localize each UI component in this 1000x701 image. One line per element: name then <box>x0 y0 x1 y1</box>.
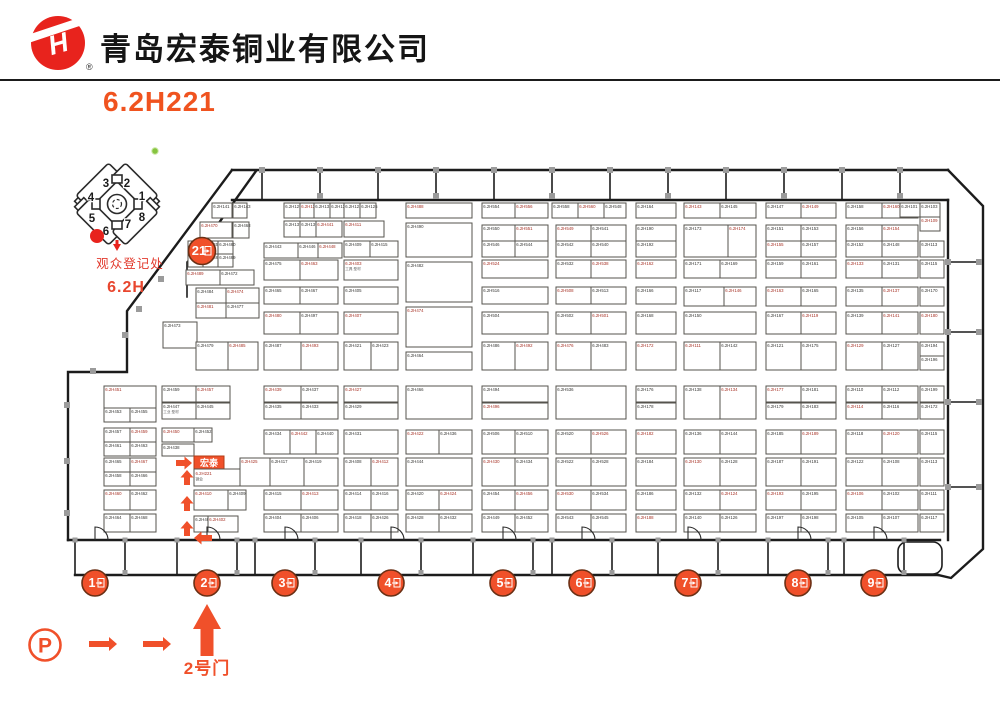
svg-text:工业 型材: 工业 型材 <box>163 409 179 414</box>
svg-text:6.2H143: 6.2H143 <box>234 204 251 209</box>
svg-text:6.2H556: 6.2H556 <box>516 204 533 209</box>
booth: 6.2H143 <box>684 203 720 218</box>
svg-text:6.2H541: 6.2H541 <box>592 226 609 231</box>
svg-text:6.2H438: 6.2H438 <box>163 445 180 450</box>
booth: 6.2H190 <box>636 225 676 241</box>
svg-text:1: 1 <box>89 576 96 590</box>
svg-text:6.2H176: 6.2H176 <box>637 387 654 392</box>
svg-text:6.2H462: 6.2H462 <box>131 491 148 496</box>
svg-text:6.2H465: 6.2H465 <box>105 459 122 464</box>
svg-text:6.2H172: 6.2H172 <box>637 343 654 348</box>
svg-text:6.2H436: 6.2H436 <box>440 431 457 436</box>
booth: 6.2H149 <box>801 203 836 218</box>
booth: 6.2H181 <box>801 386 836 402</box>
booth: 6.2H428 <box>406 514 439 532</box>
booth: 6.2H419 <box>304 458 338 486</box>
booth: 6.2H192 <box>636 241 676 257</box>
booth: 6.2H483 <box>591 342 626 370</box>
svg-text:6.2H516: 6.2H516 <box>483 288 500 293</box>
booth: 6.2H157 <box>801 241 836 257</box>
booth: 6.2H418 <box>344 514 371 532</box>
svg-text:铜业: 铜业 <box>196 477 204 482</box>
svg-text:6.2H418: 6.2H418 <box>345 515 362 520</box>
svg-text:6.2H185: 6.2H185 <box>767 431 784 436</box>
gate-4: 4 <box>378 570 404 596</box>
svg-text:6.2H467: 6.2H467 <box>131 459 148 464</box>
booth: 6.2H167 <box>766 312 801 334</box>
svg-text:6.2H187: 6.2H187 <box>767 459 784 464</box>
svg-text:6.2H191: 6.2H191 <box>802 459 819 464</box>
booth: 6.2H452 <box>515 514 548 532</box>
svg-text:6.2H485: 6.2H485 <box>229 343 246 348</box>
svg-text:6.2H407: 6.2H407 <box>345 313 362 318</box>
svg-text:6.2H482: 6.2H482 <box>407 263 424 268</box>
booth: 6.2H126 <box>720 514 756 532</box>
svg-text:6.2H472: 6.2H472 <box>221 271 238 276</box>
booth: 6.2H420 <box>406 490 439 510</box>
svg-text:6.2H151: 6.2H151 <box>767 226 784 231</box>
overview-hall-5: 5 <box>89 213 96 225</box>
svg-text:6.2H550: 6.2H550 <box>483 226 500 231</box>
booth: 6.2H426 <box>371 514 398 532</box>
booth: 6.2H412 <box>371 458 398 486</box>
booth: 6.2H468 <box>233 222 251 238</box>
svg-text:6.2H109: 6.2H109 <box>921 218 938 223</box>
svg-text:6.2H452: 6.2H452 <box>195 429 212 434</box>
svg-text:6.2H406: 6.2H406 <box>302 515 319 520</box>
svg-text:6.2H480: 6.2H480 <box>265 313 282 318</box>
booth: 6.2H186 <box>636 490 676 510</box>
svg-text:6.2H179: 6.2H179 <box>767 404 784 409</box>
booth: 6.2H416 <box>371 490 398 510</box>
booth: 6.2H134 <box>720 386 756 419</box>
svg-text:6.2H103: 6.2H103 <box>921 204 938 209</box>
booth: 6.2H453 <box>104 408 130 422</box>
booth: 6.2H172 <box>920 403 944 419</box>
svg-text:6.2H143: 6.2H143 <box>685 204 702 209</box>
booth: 6.2H117 <box>920 514 944 532</box>
svg-text:6.2H443: 6.2H443 <box>265 244 282 249</box>
booth: 6.2H178 <box>636 403 676 419</box>
svg-text:6.2H474: 6.2H474 <box>227 289 244 294</box>
hall-overview-compass: 12345678 <box>72 148 161 251</box>
svg-text:6.2H457: 6.2H457 <box>105 429 122 434</box>
booth: 6.2H548 <box>604 203 626 218</box>
gate-2-label: 2号门 <box>184 658 230 678</box>
booth: 6.2H150 <box>684 312 756 334</box>
svg-text:6.2H414: 6.2H414 <box>345 491 362 496</box>
svg-text:6.2H513: 6.2H513 <box>592 288 609 293</box>
svg-text:6.2H548: 6.2H548 <box>605 204 622 209</box>
svg-text:6.2H180: 6.2H180 <box>921 313 938 318</box>
booth: 6.2H101 <box>900 203 920 217</box>
svg-text:6.2H456: 6.2H456 <box>516 491 533 496</box>
svg-text:6.2H466: 6.2H466 <box>131 473 148 478</box>
booth: 6.2H128 <box>720 458 756 486</box>
booth: 6.2H476 <box>556 342 591 370</box>
svg-text:6.2H464: 6.2H464 <box>407 353 424 358</box>
booth: 6.2H474 <box>226 288 259 303</box>
svg-text:6.2H167: 6.2H167 <box>767 313 784 318</box>
svg-text:6.2H448: 6.2H448 <box>319 244 336 249</box>
svg-text:6.2H430: 6.2H430 <box>483 459 500 464</box>
highlight-booth-number: 6.2H221 <box>196 471 213 476</box>
svg-text:6.2H487: 6.2H487 <box>265 343 282 348</box>
svg-text:6.2H416: 6.2H416 <box>372 491 389 496</box>
svg-text:6.2H463: 6.2H463 <box>301 261 318 266</box>
booth: 6.2H463 <box>300 260 338 280</box>
svg-text:6.2H450: 6.2H450 <box>163 429 180 434</box>
booth: 6.2H438 <box>162 444 194 456</box>
booth: 6.2H103 <box>920 203 940 217</box>
booth: 6.2H159 <box>766 260 801 278</box>
booth: 6.2H115 <box>920 430 944 454</box>
svg-text:6.2H102: 6.2H102 <box>883 491 900 496</box>
svg-text:6.2H136: 6.2H136 <box>685 431 702 436</box>
svg-text:6.2H192: 6.2H192 <box>637 242 654 247</box>
svg-text:6.2H501: 6.2H501 <box>592 313 609 318</box>
overview-hall-3: 3 <box>103 178 109 190</box>
booth: 6.2H137 <box>882 287 918 306</box>
svg-text:6.2H110: 6.2H110 <box>847 387 864 392</box>
booth: 6.2H130 <box>684 458 720 486</box>
booth: 6.2H409 <box>228 490 246 510</box>
booth: 6.2H520 <box>556 430 591 454</box>
booth: 6.2H546 <box>482 241 515 257</box>
svg-text:6.2H134: 6.2H134 <box>721 387 738 392</box>
booth: 6.2H422 <box>406 430 439 454</box>
svg-text:6.2H119: 6.2H119 <box>802 313 819 318</box>
booth: 6.2H119 <box>801 312 836 334</box>
booth: 6.2H191 <box>801 458 836 486</box>
booth: 6.2H111 <box>684 342 720 370</box>
booth: 6.2H536 <box>556 386 626 419</box>
svg-text:6.2H474: 6.2H474 <box>407 308 424 313</box>
svg-text:6.2H536: 6.2H536 <box>557 387 574 392</box>
booth: 6.2H467 <box>130 458 156 472</box>
svg-text:6.2H432: 6.2H432 <box>440 515 457 520</box>
booth: 6.2H163 <box>766 287 801 306</box>
booth: 6.2H451 <box>104 386 156 408</box>
booth: 6.2H180 <box>920 312 944 334</box>
overview-hall-4: 4 <box>88 192 95 204</box>
svg-text:6.2H446: 6.2H446 <box>299 244 316 249</box>
svg-text:6.2H522: 6.2H522 <box>557 459 574 464</box>
booth: 6.2H183 <box>801 403 836 419</box>
booth: 6.2H154 <box>882 225 918 241</box>
company-logo-icon: H <box>26 10 92 78</box>
booth: 6.2H415 <box>370 241 398 257</box>
svg-text:6.2H441: 6.2H441 <box>317 222 334 227</box>
svg-text:6.2H452: 6.2H452 <box>516 515 533 520</box>
booth: 6.2H182 <box>636 430 676 454</box>
booth: 6.2H172 <box>636 342 676 370</box>
booth: 6.2H528 <box>591 458 626 486</box>
gate-7: 7 <box>675 570 701 596</box>
booth: 6.2H469 <box>218 254 236 267</box>
booth: 6.2H146 <box>724 287 756 306</box>
svg-text:P: P <box>38 635 52 658</box>
booth: 6.2H436 <box>439 430 472 454</box>
svg-text:6.2H117: 6.2H117 <box>685 288 702 293</box>
booth: 6.2H193 <box>766 490 801 510</box>
svg-text:6.2H543: 6.2H543 <box>557 515 574 520</box>
booth: 6.2H129 <box>846 342 882 370</box>
svg-text:6.2H184: 6.2H184 <box>637 459 654 464</box>
svg-text:6.2H428: 6.2H428 <box>407 515 424 520</box>
booth: 6.2H105 <box>846 514 882 532</box>
svg-text:5: 5 <box>497 576 504 590</box>
booth: 6.2H116 <box>882 403 918 419</box>
svg-text:6.2H159: 6.2H159 <box>767 261 784 266</box>
booth: 6.2H169 <box>720 260 756 278</box>
booth: 6.2H534 <box>591 490 626 510</box>
booth: 6.2H466 <box>130 472 156 486</box>
svg-text:6.2H415: 6.2H415 <box>265 491 282 496</box>
booth: 6.2H129 <box>284 203 302 218</box>
booth: 6.2H408 <box>344 458 371 486</box>
booth: 6.2H461 <box>104 442 130 456</box>
booth: 6.2H544 <box>515 241 548 257</box>
svg-text:6.2H188: 6.2H188 <box>637 515 654 520</box>
svg-text:6.2H451: 6.2H451 <box>105 387 122 392</box>
svg-text:6.2H545: 6.2H545 <box>592 515 609 520</box>
svg-text:6.2H175: 6.2H175 <box>802 343 819 348</box>
booth: 6.2H470 <box>200 222 232 238</box>
booth: 6.2H111 <box>920 490 944 510</box>
svg-text:7: 7 <box>682 576 689 590</box>
booth: 6.2H121 <box>766 342 801 370</box>
booth: 6.2H463 <box>130 442 156 456</box>
svg-text:6.2H404: 6.2H404 <box>265 515 282 520</box>
booth: 6.2H490 <box>406 223 472 257</box>
booth: 6.2H457 <box>104 428 130 442</box>
booth: 6.2H538 <box>591 260 626 278</box>
gate-6: 6 <box>569 570 595 596</box>
booth: 6.2H446 <box>298 243 318 258</box>
svg-text:6.2H426: 6.2H426 <box>372 515 389 520</box>
svg-text:6.2H510: 6.2H510 <box>516 431 533 436</box>
svg-text:6.2H132: 6.2H132 <box>685 491 702 496</box>
svg-text:6.2H120: 6.2H120 <box>883 431 900 436</box>
booth: 6.2H113 <box>920 458 944 486</box>
booth: 6.2H486 <box>482 342 515 370</box>
gate-3: 3 <box>272 570 298 596</box>
booth: 6.2H113 <box>920 241 944 257</box>
svg-text:6.2H173: 6.2H173 <box>685 226 702 231</box>
svg-text:6.2H117: 6.2H117 <box>921 515 938 520</box>
booth: 6.2H112 <box>882 386 918 402</box>
booth: 6.2H526 <box>591 430 626 454</box>
svg-text:6.2H147: 6.2H147 <box>767 204 784 209</box>
svg-text:6: 6 <box>576 576 583 590</box>
booth: 6.2H153 <box>801 225 836 241</box>
booth: 6.2H131 <box>882 260 918 278</box>
svg-text:6.2H442: 6.2H442 <box>291 431 308 436</box>
svg-text:6.2H532: 6.2H532 <box>557 261 574 266</box>
booth: 6.2H109 <box>920 217 940 231</box>
svg-text:6.2H182: 6.2H182 <box>637 431 654 436</box>
booth: 6.2H143 <box>233 203 251 218</box>
booth: 6.2H423 <box>371 342 398 370</box>
booth: 6.2H430 <box>482 458 515 486</box>
booth: 6.2H122 <box>846 458 882 486</box>
booth: 6.2H141 <box>212 203 232 218</box>
svg-text:6.2H171: 6.2H171 <box>685 261 702 266</box>
booth: 6.2H147 <box>766 203 801 218</box>
gate-21: 21 <box>189 238 216 265</box>
svg-text:6.2H155: 6.2H155 <box>767 242 784 247</box>
booth: 6.2H117 <box>684 287 724 306</box>
svg-text:4: 4 <box>385 576 392 590</box>
svg-text:6.2H166: 6.2H166 <box>637 288 654 293</box>
booth: 6.2H185 <box>766 430 801 454</box>
company-name: 青岛宏泰铜业有限公司 <box>100 24 430 69</box>
booth: 6.2H188 <box>636 514 676 532</box>
svg-text:6.2H488: 6.2H488 <box>407 204 424 209</box>
svg-text:6.2H526: 6.2H526 <box>592 431 609 436</box>
booth: 6.2H560 <box>578 203 604 218</box>
highlight-name: 宏泰 <box>200 457 219 468</box>
booth: 6.2H139 <box>300 221 318 237</box>
svg-text:6.2H142: 6.2H142 <box>721 343 738 348</box>
svg-text:6.2H534: 6.2H534 <box>592 491 609 496</box>
booth: 6.2H123 <box>344 203 362 218</box>
svg-text:工具 型材: 工具 型材 <box>345 266 361 271</box>
booth: 6.2H462 <box>130 490 156 510</box>
svg-text:6.2H433: 6.2H433 <box>302 404 319 409</box>
booth: 6.2H433 <box>301 403 338 419</box>
booth: 6.2H434 <box>515 458 548 486</box>
svg-text:6.2H140: 6.2H140 <box>685 515 702 520</box>
svg-text:6.2H464: 6.2H464 <box>105 515 122 520</box>
gate-8: 8 <box>785 570 811 596</box>
overview-hall-7: 7 <box>125 219 131 231</box>
booth: 6.2H145 <box>720 203 756 218</box>
header-divider <box>0 79 1000 81</box>
svg-text:6.2H508: 6.2H508 <box>557 288 574 293</box>
svg-text:6.2H449: 6.2H449 <box>483 515 500 520</box>
booth: 6.2H148 <box>882 241 918 257</box>
svg-text:6.2H141: 6.2H141 <box>213 204 230 209</box>
booth: 6.2H424 <box>439 490 472 510</box>
booth: 6.2H504 <box>482 312 548 334</box>
svg-text:6.2H403: 6.2H403 <box>345 261 362 266</box>
booth: 6.2H445 <box>196 403 230 419</box>
svg-text:6.2H468: 6.2H468 <box>234 223 251 228</box>
booth: 6.2H459 <box>130 428 156 442</box>
booth: 6.2H413 <box>301 490 338 510</box>
booth: 6.2H496 <box>482 403 548 419</box>
booth: 6.2H195 <box>801 490 836 510</box>
svg-text:6.2H431: 6.2H431 <box>345 431 362 436</box>
booth: 6.2H442 <box>290 430 316 454</box>
booth: 6.2H405 <box>344 287 398 304</box>
page-booth-number: 6.2H221 <box>103 86 216 118</box>
svg-text:6.2H427: 6.2H427 <box>345 387 362 392</box>
svg-text:6.2H194: 6.2H194 <box>921 343 938 348</box>
svg-text:6.2H141: 6.2H141 <box>883 313 900 318</box>
booth: 6.2H120 <box>882 430 918 454</box>
booth: 6.2H407 <box>344 312 398 334</box>
svg-text:6.2H101: 6.2H101 <box>901 204 918 209</box>
booth: 6.2H549 <box>556 225 591 241</box>
svg-text:6.2H434: 6.2H434 <box>265 431 282 436</box>
booth: 6.2H409 <box>344 241 370 257</box>
booth: 6.2H459 <box>162 386 196 402</box>
booth: 6.2H494 <box>482 386 548 402</box>
booth: 6.2H556 <box>515 203 548 218</box>
svg-text:6.2H463: 6.2H463 <box>131 443 148 448</box>
booth: 6.2H156 <box>846 225 882 241</box>
svg-text:6.2H174: 6.2H174 <box>729 226 746 231</box>
booth: 6.2H158 <box>846 203 882 218</box>
booth: 6.2H425 <box>240 458 270 486</box>
gate-2: 2 <box>194 570 220 596</box>
svg-text:6.2H156: 6.2H156 <box>847 226 864 231</box>
svg-text:6.2H168: 6.2H168 <box>637 313 654 318</box>
svg-text:6.2H412: 6.2H412 <box>372 459 389 464</box>
svg-text:6.2H502: 6.2H502 <box>557 313 574 318</box>
booth: 6.2H464 <box>104 514 130 532</box>
svg-text:6.2H560: 6.2H560 <box>579 204 596 209</box>
booth: 6.2H152 <box>846 241 882 257</box>
booth: 6.2H434 <box>264 430 290 454</box>
svg-text:6.2H459: 6.2H459 <box>131 429 148 434</box>
svg-text:6.2H139: 6.2H139 <box>847 313 864 318</box>
svg-text:6.2H118: 6.2H118 <box>847 431 864 436</box>
booth: 6.2H450 <box>162 428 194 442</box>
booth: 6.2H506 <box>482 430 515 454</box>
svg-text:6.2H197: 6.2H197 <box>767 515 784 520</box>
svg-text:6.2H549: 6.2H549 <box>557 226 574 231</box>
svg-text:6.2H130: 6.2H130 <box>685 459 702 464</box>
booth: 6.2H540 <box>591 241 626 257</box>
booth: 6.2H516 <box>482 287 548 304</box>
booth: 6.2H554 <box>482 203 515 218</box>
svg-text:6.2H473: 6.2H473 <box>164 323 181 328</box>
svg-text:6.2H115: 6.2H115 <box>921 431 938 436</box>
booth: 6.2H133 <box>846 260 882 278</box>
booth: 6.2H108 <box>882 458 918 486</box>
svg-text:6.2H460: 6.2H460 <box>219 242 236 247</box>
svg-text:6.2H124: 6.2H124 <box>721 491 738 496</box>
svg-text:6.2H419: 6.2H419 <box>305 459 322 464</box>
booth: 6.2H467 <box>300 287 338 304</box>
booth: 6.2H177 <box>766 386 801 402</box>
booth: 6.2H162 <box>636 260 676 278</box>
svg-text:6.2H108: 6.2H108 <box>883 459 900 464</box>
booth: 6.2H452 <box>194 428 212 442</box>
overview-hall-2: 2 <box>124 178 130 190</box>
svg-text:3: 3 <box>279 576 286 590</box>
booth: 6.2H173 <box>684 225 728 257</box>
booth: 6.2H489 <box>186 270 220 285</box>
booth: 6.2H464 <box>406 352 472 370</box>
booth: 6.2H155 <box>766 241 801 257</box>
svg-text:6.2H437: 6.2H437 <box>302 387 319 392</box>
booth: 6.2H543 <box>556 514 591 532</box>
booth: 6.2H197 <box>766 514 801 532</box>
svg-text:6.2H429: 6.2H429 <box>345 404 362 409</box>
booth: 6.2H448 <box>318 243 342 258</box>
svg-text:6.2H494: 6.2H494 <box>483 387 500 392</box>
registration-label: 观众登记处 <box>96 256 164 271</box>
svg-text:6.2H457: 6.2H457 <box>197 387 214 392</box>
svg-text:6.2H440: 6.2H440 <box>317 431 334 436</box>
booth: 6.2H479 <box>196 342 228 370</box>
svg-text:6.2H554: 6.2H554 <box>483 204 500 209</box>
